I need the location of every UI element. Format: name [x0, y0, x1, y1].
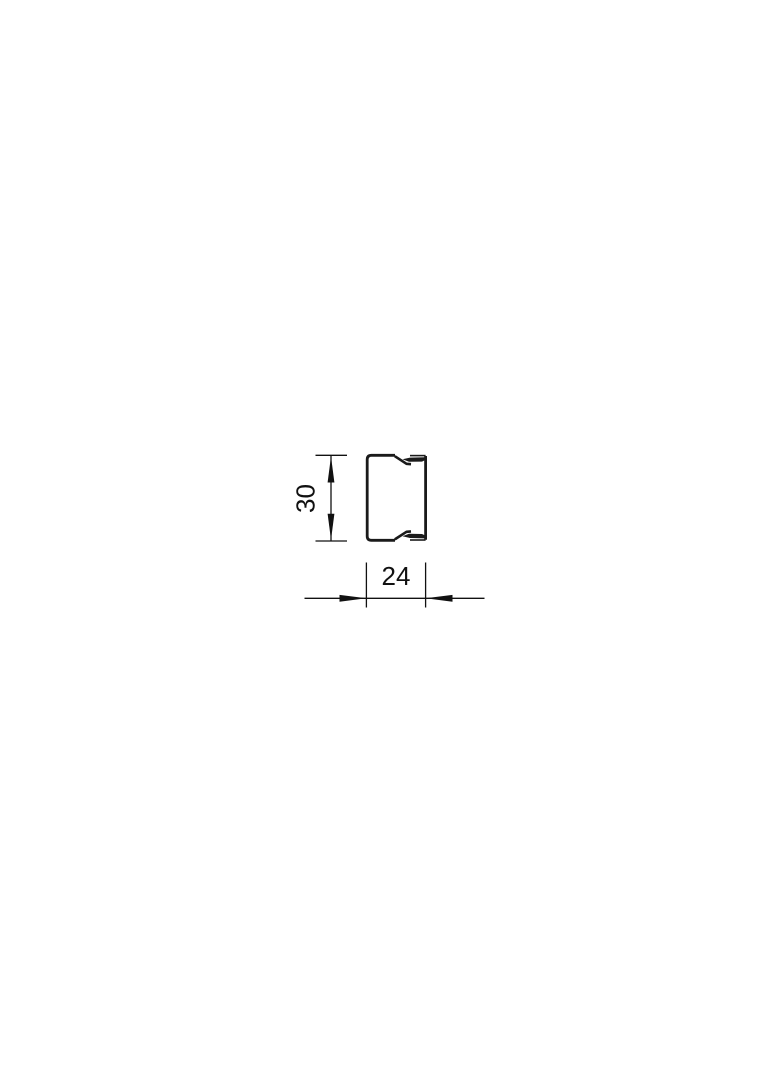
technical-drawing-page: 30 24 [0, 0, 784, 1066]
height-dim-label: 30 [291, 484, 321, 513]
width-dimension: 24 [305, 561, 485, 608]
duct-top-snap-lip [403, 457, 426, 462]
duct-profile [367, 455, 426, 540]
height-dimension: 30 [291, 455, 348, 541]
duct-body-outline [367, 455, 395, 540]
duct-cross-section-drawing: 30 24 [0, 0, 784, 1066]
duct-bottom-snap-lip [403, 534, 426, 539]
width-dim-label: 24 [382, 561, 411, 591]
height-dim-arrow-down [328, 514, 335, 540]
width-dim-arrow-left [426, 595, 453, 602]
width-dim-arrow-right [340, 595, 367, 602]
height-dim-arrow-up [328, 457, 335, 483]
